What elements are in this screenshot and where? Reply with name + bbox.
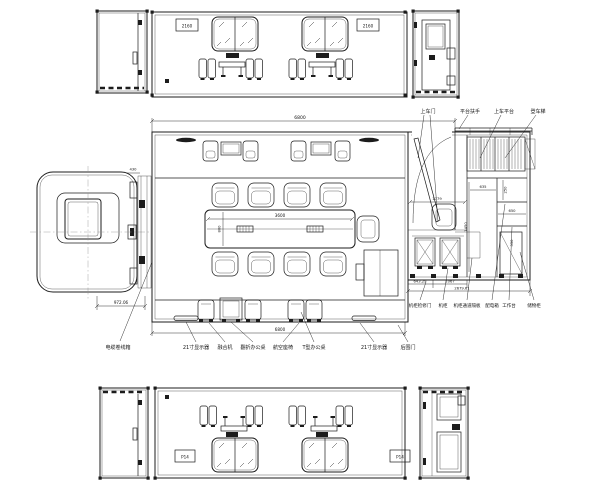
callout-platform-handrail: 平台扶手 <box>460 108 480 115</box>
callout-boarding-ladder: 登车梯 <box>530 108 545 115</box>
chairs <box>246 59 263 80</box>
dim-bay-550: 550 <box>510 239 514 247</box>
callout-monitor-21in-right: 21寸显示器 <box>361 344 387 351</box>
dim-overall-bottom: 6800 <box>150 322 407 336</box>
main-floor-plan: 3600 800 <box>152 132 408 322</box>
folding-chair <box>245 300 261 322</box>
callout-cable-reel-box: 电缆卷线箱 <box>105 344 130 351</box>
wall-seat <box>291 141 306 161</box>
chairs <box>200 406 217 427</box>
conference-chair <box>248 183 274 207</box>
dim-bay-650: 650 <box>508 209 516 213</box>
chairs <box>199 59 216 80</box>
end-chair <box>357 216 379 242</box>
wall-seat <box>335 141 350 161</box>
side-window <box>302 438 348 472</box>
callout-storage-cabinet: 储物柜 <box>527 302 541 309</box>
side-window <box>212 17 258 51</box>
dim-rear-c: 2679.61 <box>454 287 469 291</box>
vent <box>226 53 239 58</box>
folding-chair <box>198 300 214 322</box>
dim-vestibule: 1450 <box>464 222 468 232</box>
vent <box>226 432 238 437</box>
conference-chair <box>212 252 238 276</box>
vehicle-layout-drawing: 2160 2160 <box>0 0 606 485</box>
conference-chair <box>284 183 310 207</box>
callout-monitor-21in-left: 21寸显示器 <box>183 344 209 351</box>
engineering-drawing-sheet: 2160 2160 <box>0 0 606 485</box>
dim-overall-bottom-value: 6800 <box>275 327 286 332</box>
callout-power-box: 配电箱 <box>485 302 499 309</box>
nameplate-left: 2160 <box>182 24 193 29</box>
nameplate-right: 2160 <box>363 24 374 29</box>
conference-chair <box>320 252 346 276</box>
conference-chair <box>212 183 238 207</box>
dim-cab-top-value: 430 <box>129 168 137 172</box>
callout-workbench: 工作台 <box>502 302 516 309</box>
bottom-right-end-elevation <box>419 387 470 480</box>
callout-folding-desk: 翻折办公桌 <box>240 344 265 351</box>
callout-fusion-unit: 融合机 <box>217 344 232 351</box>
callout-rack-aisle-partition: 机柜通道隔板 <box>454 302 481 309</box>
boarding-ladder <box>467 137 535 171</box>
vent <box>316 432 328 437</box>
vent <box>316 53 329 58</box>
vestibule-chair <box>432 204 456 230</box>
callout-rear-door: 后围门 <box>400 344 415 351</box>
chairs <box>289 406 306 427</box>
callout-boarding-door: 上车门 <box>420 108 435 115</box>
top-right-end-elevation <box>412 10 460 99</box>
top-left-end-elevation <box>96 10 149 94</box>
conference-chair <box>320 183 346 207</box>
dim-cab-length: 972.06 430 <box>95 168 147 311</box>
dim-table-width: 800 <box>218 225 222 233</box>
flat-display <box>174 316 198 321</box>
wall-seat <box>203 141 218 161</box>
folding-chair <box>288 300 304 322</box>
nameplate-left: P14 <box>181 455 189 460</box>
callout-t-desk: T型办公桌 <box>301 344 325 351</box>
dim-table-length: 3600 <box>275 213 286 218</box>
fold-desk-box <box>220 298 242 322</box>
dim-overall-top: 6800 <box>150 115 457 132</box>
top-side-elevation: 2160 2160 <box>151 11 408 98</box>
bottom-left-end-elevation <box>99 387 150 480</box>
bottom-side-elevation: P14 P14 <box>154 387 411 480</box>
conference-chair <box>248 252 274 276</box>
chairs <box>289 59 306 80</box>
callouts-right: 机柜检修门 机柜 机柜通道隔板 配电箱 工作台 储物柜 <box>409 204 541 309</box>
nameplate-right: P14 <box>396 455 404 460</box>
flat-display <box>352 316 376 321</box>
cab-plan <box>30 166 150 300</box>
wall-seat <box>243 141 258 161</box>
callout-rack-access-door: 机柜检修门 <box>409 302 432 309</box>
dim-overall-top-value: 6800 <box>294 115 306 121</box>
callout-boarding-platform: 上车平台 <box>494 108 514 115</box>
roof-vent <box>176 138 196 142</box>
table <box>309 62 335 77</box>
dim-rear-b: 1067 <box>445 280 455 284</box>
dim-bay-635: 635 <box>479 185 487 189</box>
equipment-rack <box>415 238 435 269</box>
chairs <box>246 406 263 427</box>
side-window <box>212 438 258 472</box>
chairs <box>336 59 353 80</box>
callout-aviation-seat: 航空座椅 <box>273 344 293 351</box>
dim-bay-250: 250 <box>504 186 508 194</box>
dim-cab-value: 972.06 <box>114 300 129 305</box>
dim-rear-a: 643.29 <box>414 280 428 284</box>
table <box>311 416 337 431</box>
equipment-rack <box>440 238 460 269</box>
table <box>219 62 245 77</box>
roof-vent <box>359 138 379 142</box>
conference-chair <box>284 252 310 276</box>
callouts-top: 上车门 平台扶手 上车平台 登车梯 <box>418 108 546 222</box>
chairs <box>336 406 353 427</box>
side-window <box>302 17 348 51</box>
boarding-ladder-platform <box>455 128 535 171</box>
dim-door-width: 1779 <box>432 197 442 201</box>
callout-rack: 机柜 <box>439 302 448 309</box>
folding-chair <box>306 300 322 322</box>
t-desk <box>356 250 398 296</box>
table <box>221 416 247 431</box>
